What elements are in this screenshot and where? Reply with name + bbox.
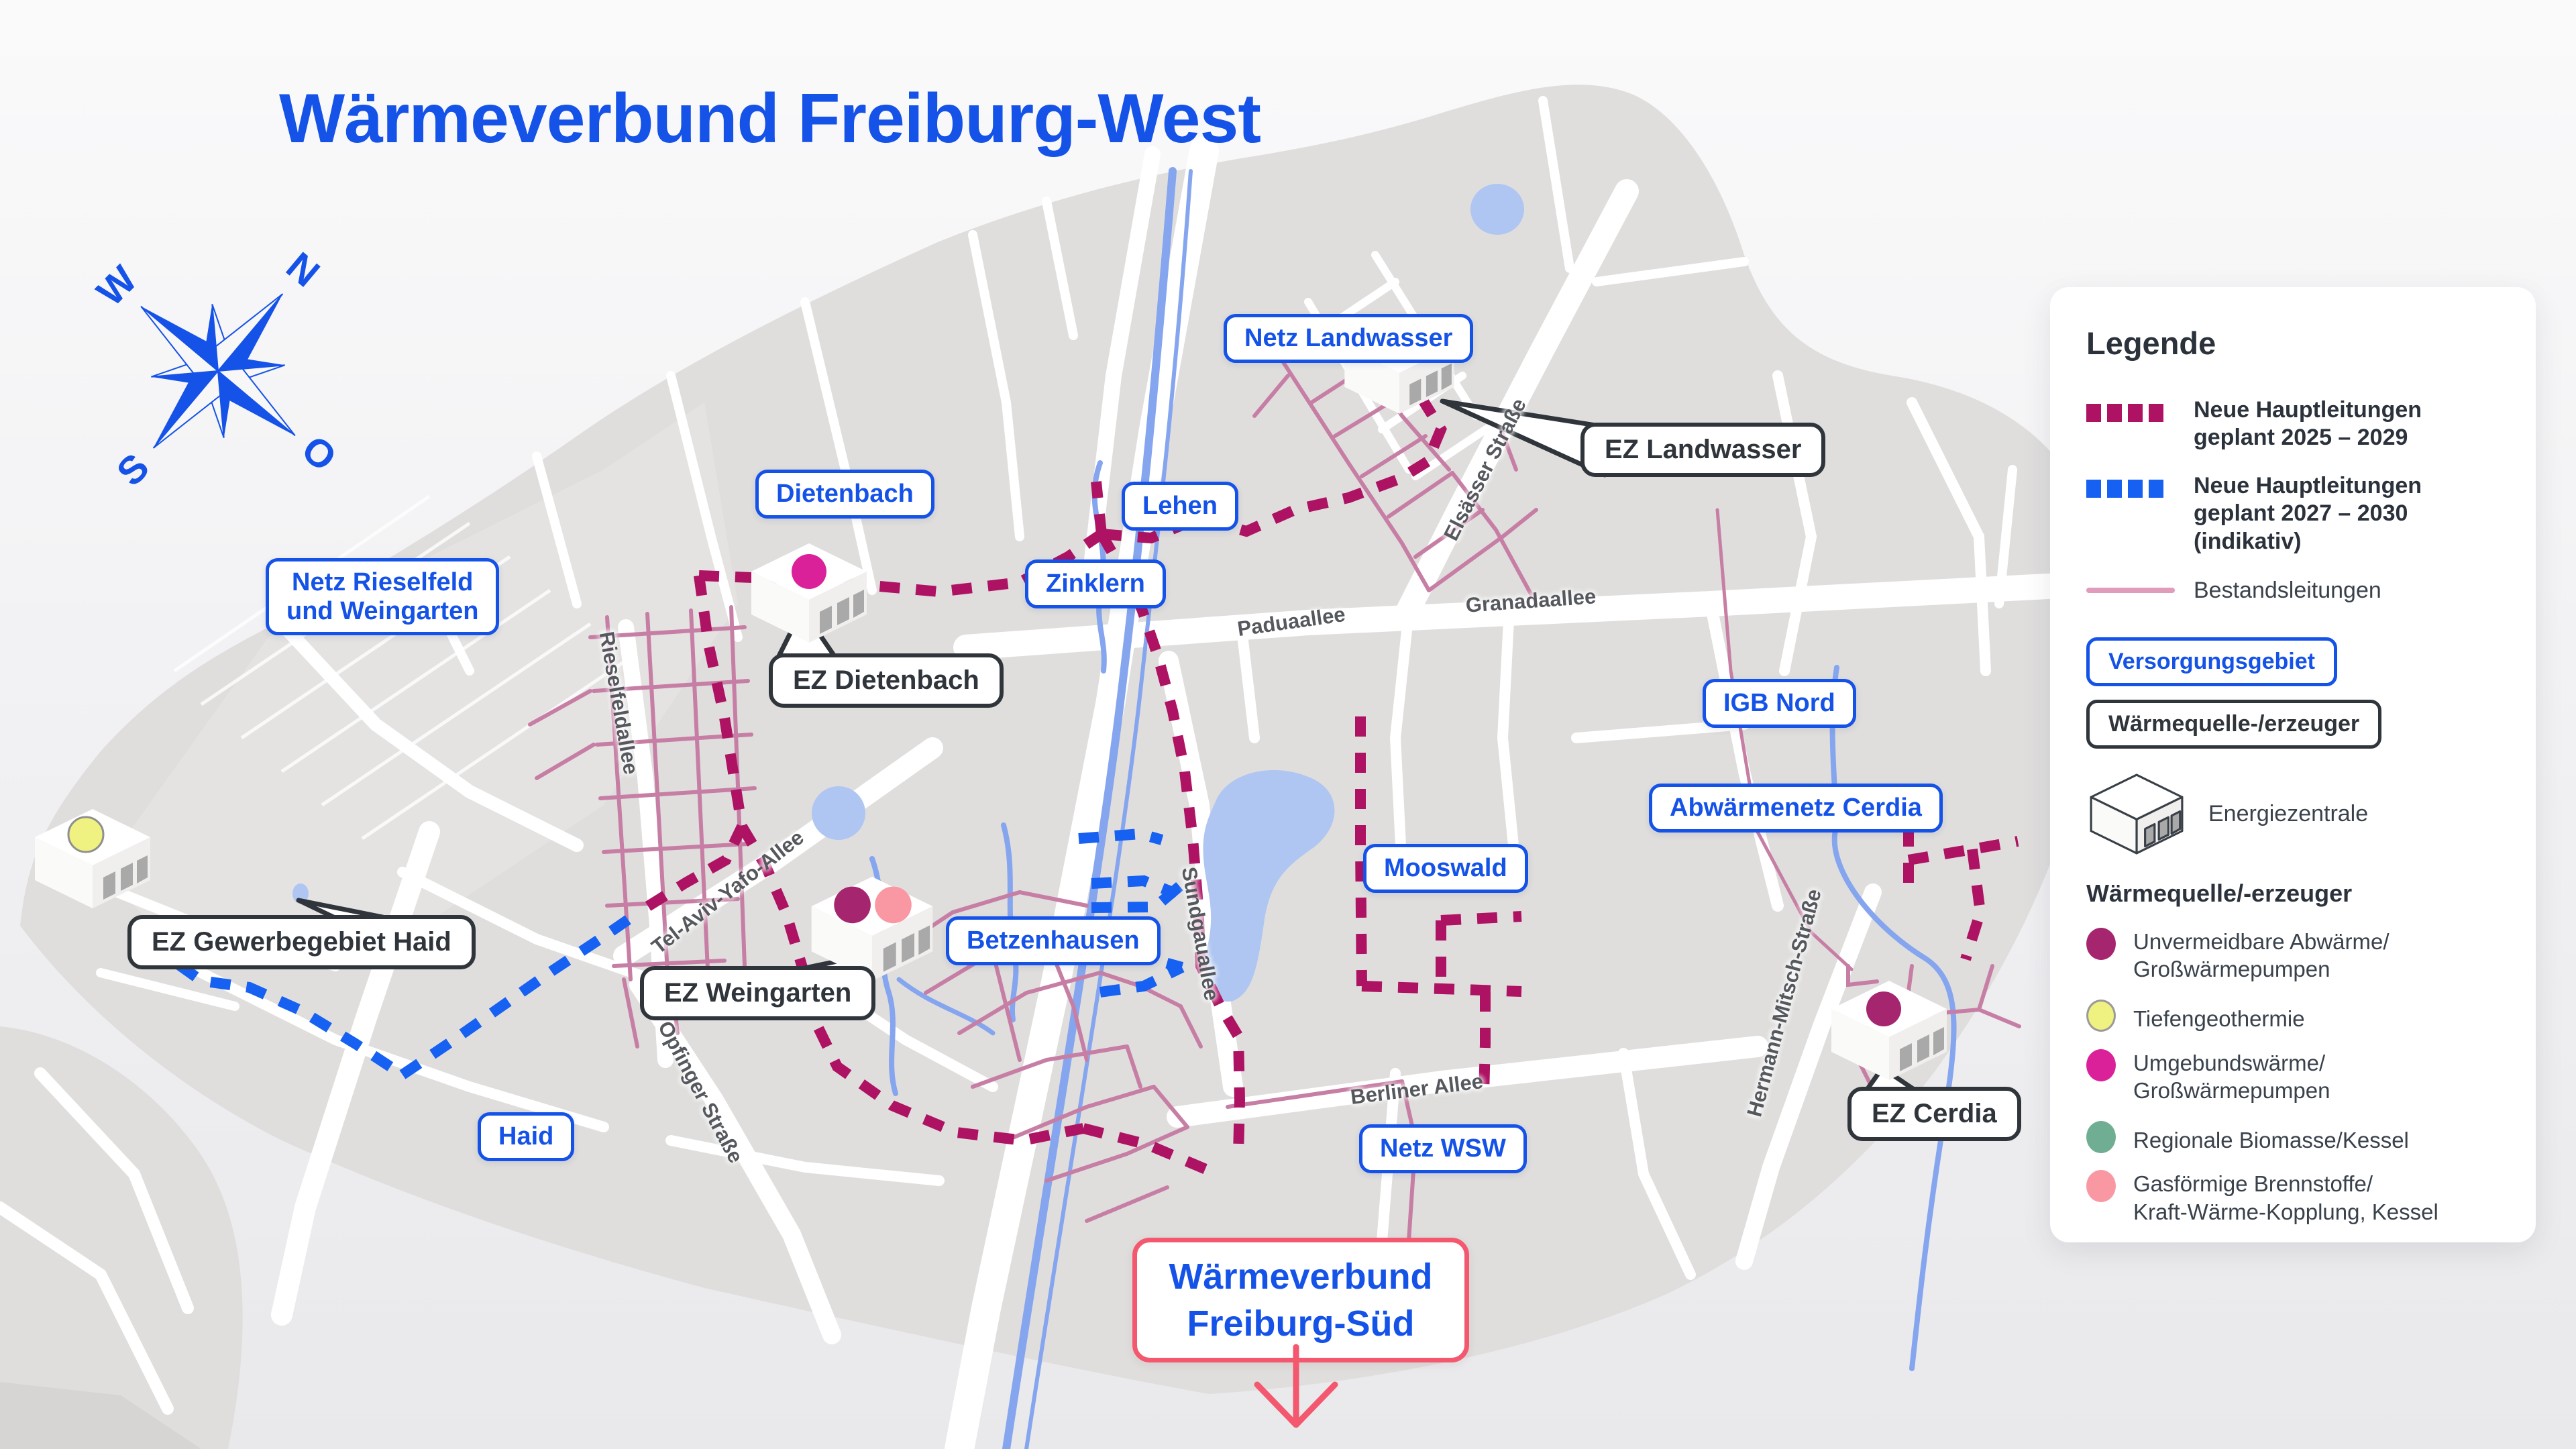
legend-source-label: Unvermeidbare Abwärme/ Großwärmepumpen: [2133, 928, 2390, 983]
source-label-line1: Unvermeidbare Abwärme/: [2133, 928, 2390, 956]
page-title: Wärmeverbund Freiburg-West: [279, 79, 1260, 159]
legend-item-existing-lines: Bestandsleitungen: [2086, 576, 2500, 604]
legend-item-plant: Energiezentrale: [2086, 769, 2500, 859]
legend-source-ambient-heat: Umgebundswärme/ Großwärmepumpen: [2086, 1049, 2500, 1105]
callout-ez-dietenbach: EZ Dietenbach: [769, 653, 1004, 708]
legend-label-line1: Neue Hauptleitungen: [2194, 472, 2500, 500]
south-link-line2: Freiburg-Süd: [1137, 1300, 1464, 1347]
area-label-netz-rieselfeld-weingarten: Netz Rieselfeld und Weingarten: [266, 558, 499, 635]
callout-ez-gewerbegebiet-haid: EZ Gewerbegebiet Haid: [127, 915, 476, 969]
waste-heat-dot: [1866, 991, 1901, 1026]
area-label-haid: Haid: [478, 1112, 574, 1161]
legend-item-label: Neue Hauptleitungen geplant 2027 – 2030 …: [2194, 472, 2500, 555]
legend-heading: Legende: [2086, 325, 2500, 362]
area-label-netz-wsw: Netz WSW: [1359, 1124, 1527, 1173]
south-link-line1: Wärmeverbund: [1137, 1253, 1464, 1300]
legend-label-line2: geplant 2027 – 2030 (indikativ): [2194, 500, 2500, 555]
dashed-line-swatch-2027: [2086, 480, 2175, 498]
geothermal-dot: [68, 817, 103, 852]
legend-item-route-2027: Neue Hauptleitungen geplant 2027 – 2030 …: [2086, 472, 2500, 555]
legend-source-label: Tiefengeothermie: [2133, 1005, 2305, 1033]
legend-source-biomass: Regionale Biomasse/Kessel: [2086, 1121, 2500, 1155]
callout-ez-cerdia: EZ Cerdia: [1847, 1087, 2021, 1141]
legend-source-gas: Gasförmige Brennstoffe/ Kraft-Wärme-Kopp…: [2086, 1170, 2500, 1226]
sources-heading: Wärmequelle/-erzeuger: [2086, 879, 2500, 908]
waste-heat-dot: [834, 887, 871, 924]
compass-icon: N O S W: [94, 247, 342, 495]
legend-item-route-2025: Neue Hauptleitungen geplant 2025 – 2029: [2086, 396, 2500, 452]
gas-dot: [2086, 1170, 2116, 1202]
legend-item-label: Bestandsleitungen: [2194, 577, 2381, 604]
legend-source-label: Umgebundswärme/ Großwärmepumpen: [2133, 1049, 2330, 1105]
area-label-zinklern: Zinklern: [1025, 559, 1166, 608]
gas-dot: [875, 887, 912, 924]
area-label-abwaermenetz-cerdia: Abwärmenetz Cerdia: [1649, 784, 1943, 833]
infographic-canvas: Wärmeverbund Freiburg-West: [0, 0, 2576, 1449]
legend-source-label: Regionale Biomasse/Kessel: [2133, 1126, 2409, 1155]
source-label-line2: Großwärmepumpen: [2133, 1077, 2330, 1105]
dashed-line-swatch-2025: [2086, 404, 2175, 422]
legend-item-label: Neue Hauptleitungen geplant 2025 – 2029: [2194, 396, 2422, 452]
area-label-line1: Netz Rieselfeld: [286, 568, 478, 597]
legend-source-label: Gasförmige Brennstoffe/ Kraft-Wärme-Kopp…: [2133, 1170, 2438, 1226]
legend-label-line1: Neue Hauptleitungen: [2194, 396, 2422, 424]
compass-south-label: S: [109, 445, 158, 494]
legend-source-waste-heat: Unvermeidbare Abwärme/ Großwärmepumpen: [2086, 928, 2500, 983]
compass-west-label: W: [94, 258, 146, 315]
area-label-lehen: Lehen: [1122, 482, 1238, 531]
heat-source-key: Wärmequelle-/erzeuger: [2086, 700, 2381, 749]
callout-ez-landwasser: EZ Landwasser: [1580, 423, 1825, 477]
source-label-line1: Gasförmige Brennstoffe/: [2133, 1170, 2438, 1198]
source-label-line1: Umgebundswärme/: [2133, 1049, 2330, 1077]
area-label-netz-landwasser: Netz Landwasser: [1224, 314, 1473, 363]
callout-ez-weingarten: EZ Weingarten: [640, 966, 875, 1020]
ambient-heat-dot: [2086, 1049, 2116, 1081]
area-label-line2: und Weingarten: [286, 597, 478, 626]
energy-plant-icon: [2086, 769, 2187, 859]
compass-north-label: N: [278, 247, 328, 295]
biomass-dot: [2086, 1121, 2116, 1153]
area-label-igb-nord: IGB Nord: [1703, 679, 1856, 728]
solid-line-swatch: [2086, 588, 2175, 593]
source-label-line2: Großwärmepumpen: [2133, 955, 2390, 983]
geothermal-dot: [2086, 1000, 2116, 1032]
area-label-dietenbach: Dietenbach: [755, 470, 934, 519]
compass-east-label: O: [293, 427, 342, 480]
legend-label-line2: geplant 2025 – 2029: [2194, 424, 2422, 451]
down-arrow-icon: [1242, 1343, 1350, 1437]
source-label-line2: Kraft-Wärme-Kopplung, Kessel: [2133, 1198, 2438, 1226]
legend-panel: Legende Neue Hauptleitungen geplant 2025…: [2050, 287, 2536, 1242]
area-label-mooswald: Mooswald: [1363, 844, 1528, 893]
waste-heat-dot: [2086, 928, 2116, 960]
legend-source-geothermal: Tiefengeothermie: [2086, 1000, 2500, 1033]
ambient-heat-dot: [792, 554, 826, 589]
supply-area-key: Versorgungsgebiet: [2086, 637, 2337, 686]
area-label-betzenhausen: Betzenhausen: [946, 916, 1161, 965]
legend-item-label: Energiezentrale: [2208, 801, 2368, 827]
